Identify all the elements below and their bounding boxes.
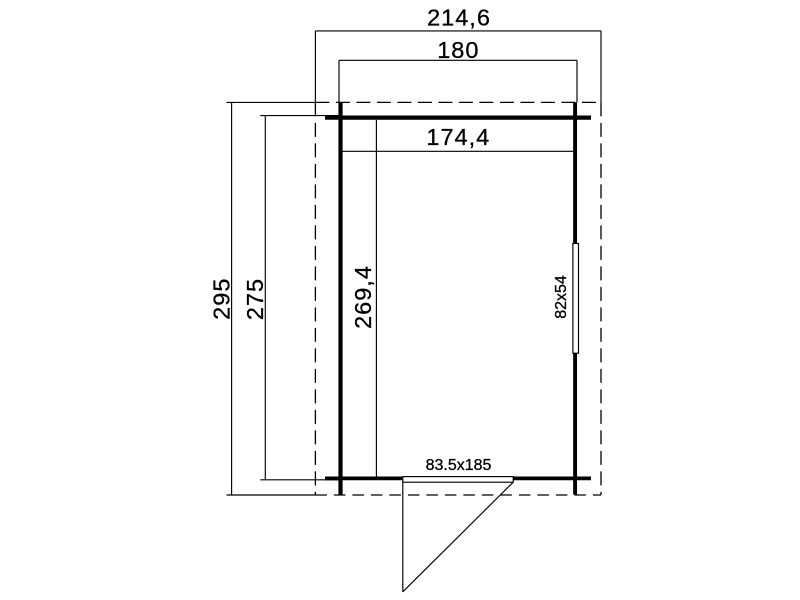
svg-text:174,4: 174,4 <box>426 124 490 150</box>
svg-text:275: 275 <box>242 278 268 320</box>
svg-text:269,4: 269,4 <box>350 265 376 329</box>
svg-text:180: 180 <box>437 37 479 63</box>
svg-text:83.5x185: 83.5x185 <box>426 457 492 474</box>
svg-text:214,6: 214,6 <box>427 5 491 31</box>
svg-text:82x54: 82x54 <box>553 275 570 319</box>
svg-text:295: 295 <box>209 278 235 320</box>
